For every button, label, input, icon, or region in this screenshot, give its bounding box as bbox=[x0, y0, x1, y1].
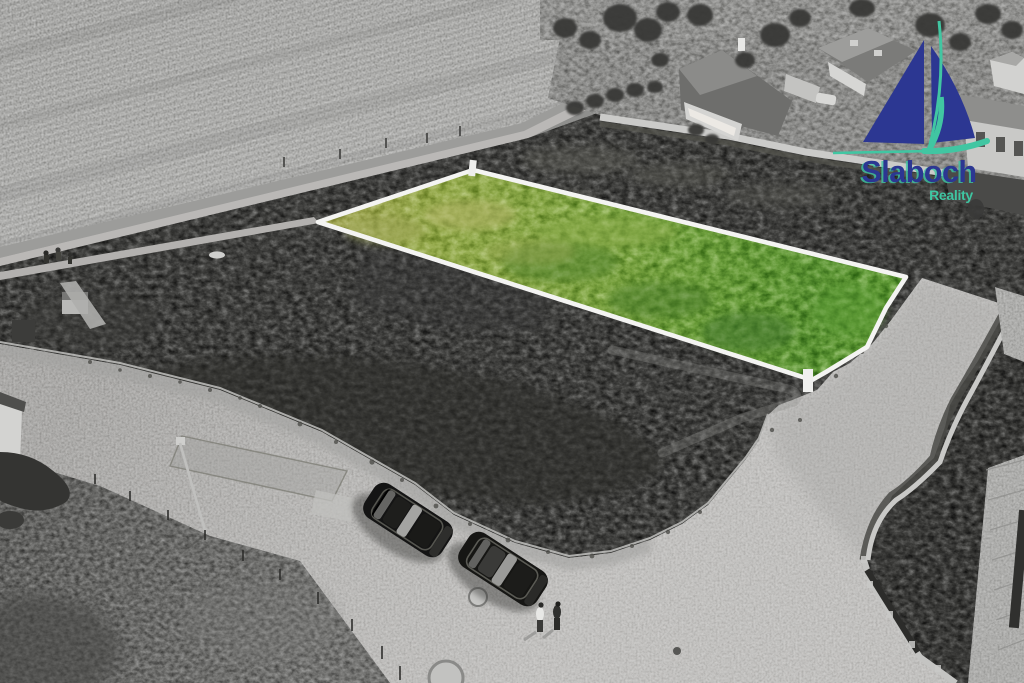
svg-text:Reality: Reality bbox=[929, 187, 973, 203]
svg-text:Slaboch: Slaboch bbox=[861, 155, 976, 189]
